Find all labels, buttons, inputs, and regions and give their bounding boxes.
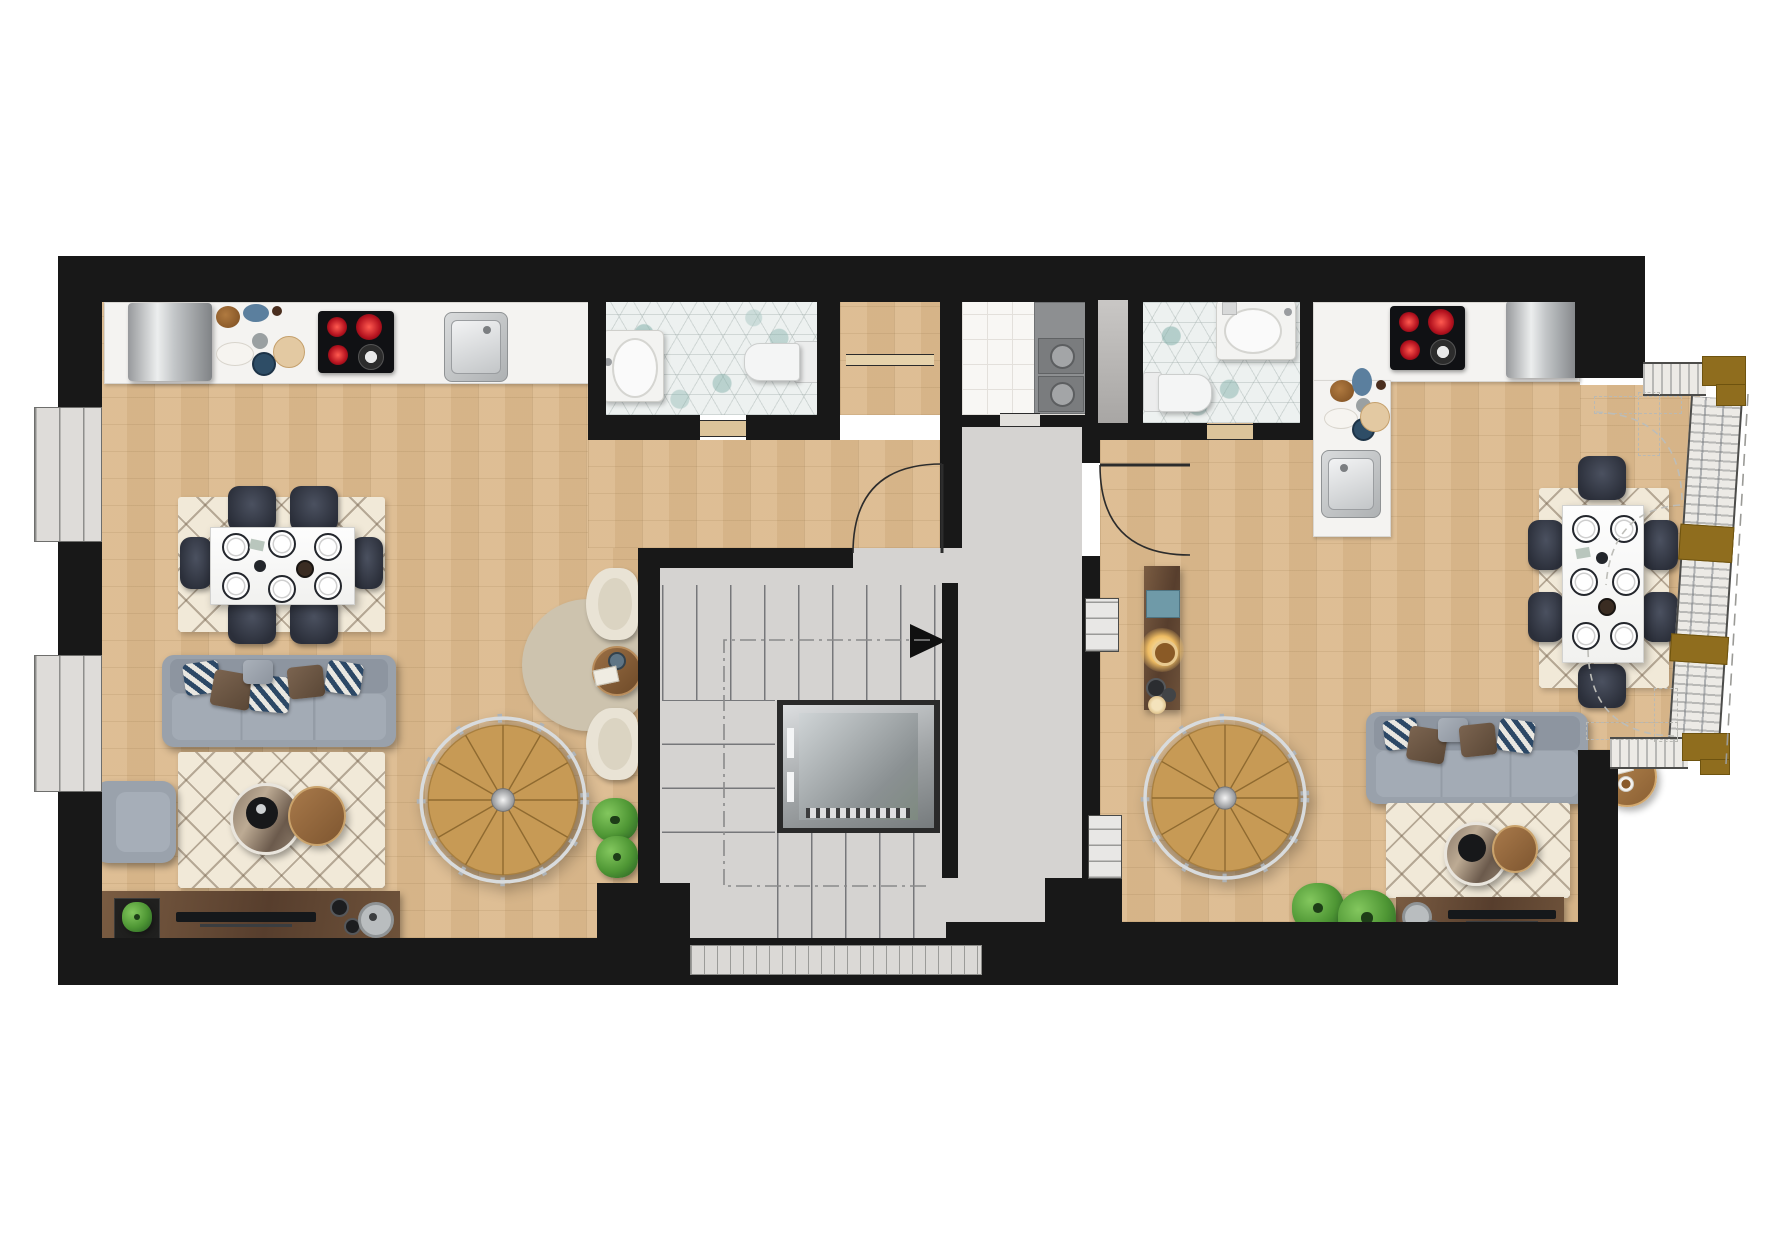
- prep-plate-white-left: [216, 342, 254, 366]
- bay-post-top-corner-b: [1716, 384, 1746, 406]
- pillow-brown-right-2: [1458, 722, 1497, 758]
- pillow-brown-left-2: [286, 664, 325, 700]
- wall-bath-right-south-a: [1143, 423, 1207, 440]
- window-left-1: [34, 407, 102, 542]
- dining-chair-right-3: [1528, 592, 1564, 642]
- nook-chair-2-seat: [598, 718, 632, 770]
- table-right-bowl-2: [1598, 598, 1616, 616]
- wall-stair-east: [942, 583, 958, 878]
- coffee-table-left-cup: [256, 804, 266, 814]
- wall-bath-right-south-b: [1253, 423, 1300, 440]
- bay-glazing-top-run: [1643, 362, 1706, 396]
- wall-bath-left-south-a: [588, 415, 700, 440]
- vanity-left-basin: [612, 338, 658, 398]
- stairs-lower-flight: [777, 833, 940, 938]
- entry-console-lamp-shade: [1152, 640, 1178, 666]
- elevator-door-slit-1: [787, 728, 794, 758]
- wall-top: [60, 256, 1645, 302]
- hob-left-burner-2: [356, 314, 382, 340]
- plate-right-4: [1612, 568, 1640, 596]
- stairs-upper-flight: [662, 585, 940, 700]
- dining-chair-right-6: [1578, 664, 1626, 708]
- wall-bath-left-east: [817, 256, 840, 440]
- coffee-table-right-wood: [1492, 825, 1538, 873]
- prep-bowl-gray-left: [252, 333, 268, 349]
- window-left-2: [34, 655, 102, 792]
- table-left-bowl-2: [296, 560, 314, 578]
- plate-left-6: [314, 572, 342, 600]
- table-right-bowl-1: [1596, 552, 1608, 564]
- bay-folding-door-box-4: [1586, 722, 1678, 740]
- sink-left-faucet: [483, 326, 491, 334]
- coffee-table-left-wood: [288, 786, 346, 846]
- fridge-right: [1506, 301, 1578, 378]
- coffee-table-right-tray: [1458, 834, 1486, 862]
- elevator-door-slit-2: [787, 772, 794, 802]
- threshold-bath-left-door: [700, 420, 746, 437]
- wall-top-right-chunk: [1575, 256, 1645, 378]
- prep-bowl-navy-left: [252, 352, 276, 376]
- prep-dot-right: [1376, 380, 1386, 390]
- sink-right-basin: [1328, 458, 1374, 510]
- plate-left-2: [222, 572, 250, 600]
- prep-board-left: [273, 336, 305, 368]
- wall-laundry-south-b: [1040, 415, 1085, 427]
- dining-chair-right-4: [1642, 520, 1678, 570]
- wall-bath-left-west: [588, 256, 606, 440]
- tv-left: [176, 912, 316, 922]
- threshold-bath-right-door: [1207, 424, 1253, 440]
- bay-post-bottom-corner: [1682, 733, 1730, 761]
- wall-bath-left-south-b: [746, 415, 817, 440]
- wall-laundry-south-a: [962, 415, 1000, 427]
- fridge-left: [128, 303, 212, 381]
- wall-right-apartment-north-stub: [1100, 423, 1143, 440]
- sink-right-faucet: [1340, 464, 1348, 472]
- dining-chair-right-2: [1528, 520, 1564, 570]
- pillow-gray-left: [243, 660, 273, 684]
- toilet-left-bath-bowl: [744, 343, 800, 381]
- prep-plate-blue-right: [1352, 368, 1372, 396]
- tv-left-base: [200, 924, 292, 927]
- dining-chair-left-2: [290, 486, 338, 532]
- hob-left-burner-1: [327, 317, 347, 337]
- side-table-coffee-cup: [1618, 776, 1634, 792]
- prep-dot-left: [272, 306, 282, 316]
- plate-right-1: [1572, 515, 1600, 543]
- wall-right-lower: [1578, 750, 1618, 985]
- floor-plan-canvas: [0, 0, 1770, 1252]
- elevator-threshold: [806, 808, 910, 818]
- speaker-left: [358, 902, 394, 938]
- bay-post-mid-1: [1678, 524, 1734, 563]
- plate-left-4: [268, 575, 296, 603]
- armchair-left-seat: [116, 792, 170, 852]
- washer-2-drum: [1050, 382, 1075, 407]
- floor-core-corridor: [958, 423, 1082, 568]
- wall-step-chunk-right: [1045, 878, 1122, 922]
- dining-chair-left-4: [351, 537, 383, 589]
- hall-niche-lower: [1088, 815, 1122, 879]
- plate-right-3: [1570, 568, 1598, 596]
- table-left-bowl-1: [254, 560, 266, 572]
- nook-chair-1-seat: [598, 578, 632, 630]
- prep-bowl-brown-right: [1330, 380, 1354, 402]
- stairs-landing-steps: [662, 700, 775, 833]
- bay-folding-door-box-2: [1594, 396, 1682, 414]
- bay-post-bottom-corner-b: [1700, 759, 1730, 775]
- elevator-cabin: [799, 713, 918, 820]
- prep-plate-blue-left: [243, 304, 269, 322]
- floor-core-landing: [853, 548, 958, 568]
- plant-left-2: [596, 836, 638, 878]
- speaker-left-cone: [369, 913, 377, 921]
- wall-stair-west: [638, 548, 660, 938]
- dining-chair-left-1: [228, 486, 276, 532]
- threshold-laundry-door: [1000, 413, 1040, 427]
- dining-chair-left-3: [180, 537, 212, 589]
- plate-left-1: [222, 533, 250, 561]
- tv-right: [1448, 910, 1556, 919]
- spiral-staircase-left: [415, 712, 591, 888]
- plate-right-5: [1572, 622, 1600, 650]
- hob-right-burner-3: [1400, 340, 1420, 360]
- tv-console-left-plant: [122, 902, 152, 932]
- wall-bottom-right: [946, 922, 1618, 985]
- wall-stair-north: [638, 548, 853, 568]
- washer-1-drum: [1050, 344, 1075, 369]
- plate-right-6: [1610, 622, 1638, 650]
- dining-chair-right-1: [1578, 456, 1626, 500]
- bay-post-mid-2: [1669, 633, 1729, 665]
- spiral-staircase-right: [1139, 712, 1311, 884]
- entrance-paving-strip: [690, 945, 982, 975]
- shaft-access-panel: [1098, 300, 1128, 423]
- hob-left-burner-4: [358, 344, 384, 370]
- hob-right-burner-1: [1399, 312, 1419, 332]
- prep-board-right: [1360, 402, 1390, 432]
- wall-bath-right-east: [1300, 256, 1313, 440]
- sink-left-basin: [451, 320, 501, 374]
- pillow-chevron-right-2: [1496, 718, 1536, 755]
- record-left-1: [330, 898, 349, 917]
- plate-left-3: [268, 530, 296, 558]
- hall-niche-upper: [1085, 598, 1119, 652]
- toilet-right-bath-bowl: [1158, 374, 1212, 412]
- hob-right-burner-4: [1430, 339, 1456, 365]
- sink-right-bath-soap: [1222, 302, 1237, 315]
- threshold-closet-door: [846, 354, 934, 366]
- entry-console-tray: [1146, 590, 1180, 618]
- plate-right-2: [1610, 515, 1638, 543]
- wall-stair-southwest-chunk: [597, 883, 690, 938]
- prep-bowl-brown-left: [216, 306, 240, 328]
- bay-post-top-corner: [1702, 356, 1746, 386]
- pillow-chevron-left-3: [324, 659, 365, 696]
- wall-left: [58, 256, 102, 985]
- hob-left-burner-3: [328, 345, 348, 365]
- sink-right-bath-faucet: [1284, 308, 1292, 316]
- sofa-right-seats: [1376, 751, 1578, 797]
- wall-closet-east: [940, 256, 962, 548]
- plate-left-5: [314, 533, 342, 561]
- wall-hall-east-upper: [1082, 423, 1100, 463]
- hob-right-burner-2: [1428, 309, 1454, 335]
- floor-left-corridor: [588, 440, 940, 548]
